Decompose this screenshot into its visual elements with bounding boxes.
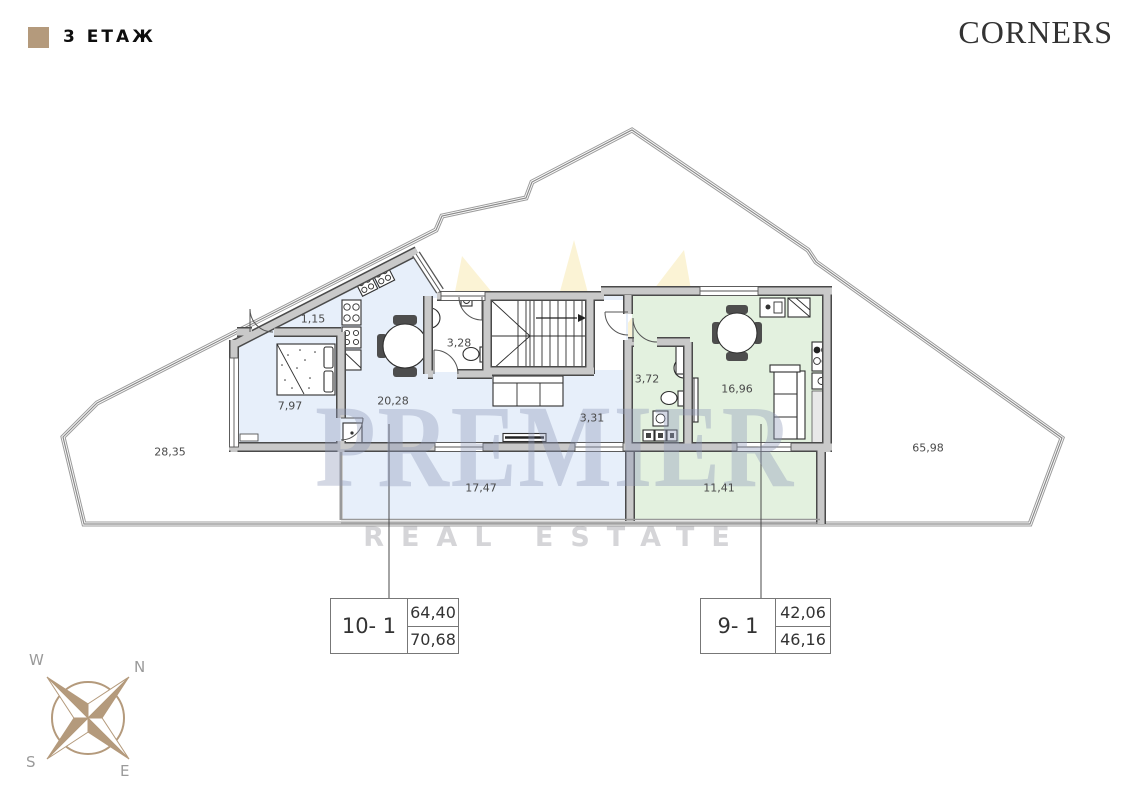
bathroom-left-floor (430, 298, 488, 372)
room-label-terrace-left: 28,35 (154, 446, 186, 459)
room-label-terrace-right: 65,98 (912, 442, 944, 455)
unit-id: 9- 1 (701, 599, 776, 653)
room-label-hallway-left: 3,31 (580, 412, 605, 425)
unit-area-net: 64,40 (408, 599, 458, 627)
room-label-bathroom-right: 3,72 (635, 373, 660, 386)
floor-plan-drawing (0, 0, 1129, 797)
room-label-corridor-right: 11,41 (703, 482, 735, 495)
floor-plan-page: 3 ЕТАЖ CORNERS PREMIER REAL ESTATE 28,35… (0, 0, 1129, 797)
floor-legend-swatch (28, 27, 49, 48)
compass-north-label: N (134, 658, 145, 676)
unit-area-net: 42,06 (776, 599, 830, 627)
compass-east-label: E (120, 762, 129, 780)
brand-logo: CORNERS (958, 14, 1113, 51)
room-label-living-left: 20,28 (377, 395, 409, 408)
compass-west-label: W (29, 651, 44, 669)
compass-south-label: S (26, 753, 36, 771)
room-label-living-right: 16,96 (721, 383, 753, 396)
sofa-right-icon (770, 365, 805, 439)
unit-box-10-1: 10- 1 64,40 70,68 (330, 598, 459, 654)
landing-floor (592, 300, 626, 370)
stairwell-floor (489, 300, 588, 369)
unit-area-total: 46,16 (776, 627, 830, 654)
unit-box-9-1: 9- 1 42,06 46,16 (700, 598, 831, 654)
floor-title: 3 ЕТАЖ (63, 27, 156, 47)
room-label-terrace-strip-left: 17,47 (465, 482, 497, 495)
unit-area-total: 70,68 (408, 627, 458, 654)
room-label-bedroom: 7,97 (278, 400, 303, 413)
hall-sofa-icon (493, 376, 563, 406)
unit-id: 10- 1 (331, 599, 408, 653)
bed-icon (277, 344, 335, 395)
room-label-bathroom-left: 3,28 (447, 337, 472, 350)
room-label-closet: 1,15 (301, 313, 326, 326)
